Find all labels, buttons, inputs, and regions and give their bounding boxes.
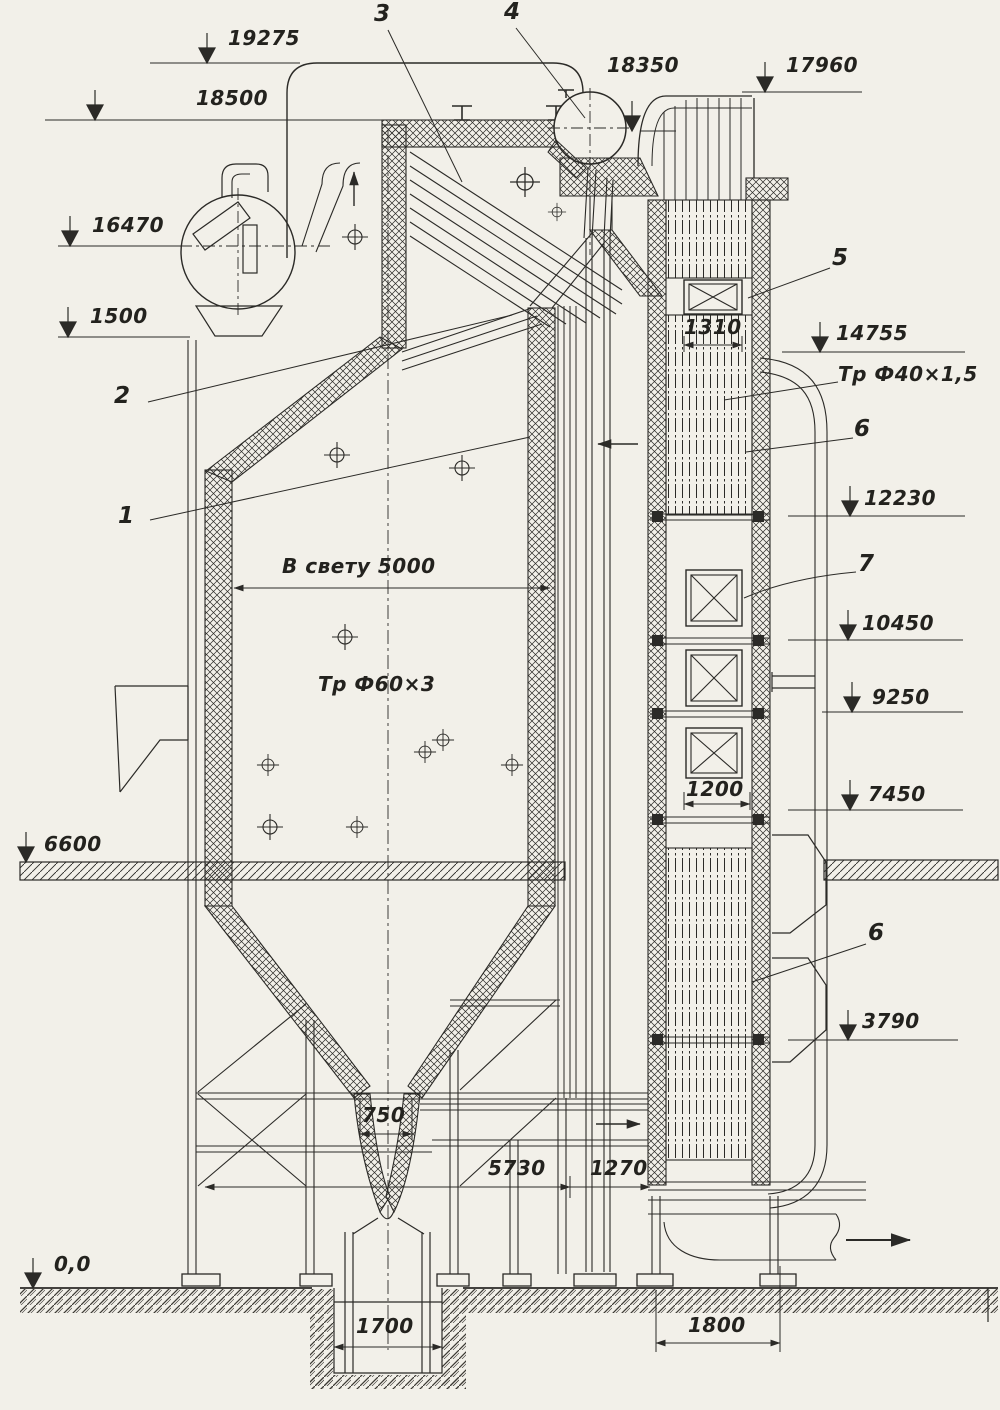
ground-and-pit bbox=[20, 1218, 998, 1389]
penthouse-casing bbox=[287, 63, 583, 258]
part-label-6-lower: 6 bbox=[868, 922, 885, 945]
furnace-tube-axis-marks bbox=[257, 167, 566, 840]
elevation-label-7450: 7450 bbox=[868, 784, 926, 804]
heating-surface-blocks bbox=[686, 570, 742, 778]
convective-shaft bbox=[648, 200, 770, 1185]
shaft-inlet-tubes bbox=[638, 96, 754, 200]
downcomer-pipes bbox=[584, 168, 613, 1272]
dimension-1200: 1200 bbox=[686, 779, 744, 799]
exit-flue bbox=[648, 1182, 910, 1260]
elevation-label-18500: 18500 bbox=[196, 88, 268, 108]
burner-duct bbox=[115, 686, 188, 792]
dimension-clear-width-5000: В свету 5000 bbox=[282, 556, 436, 576]
elevation-label-16470: 16470 bbox=[92, 215, 164, 235]
dimension-5730: 5730 bbox=[488, 1158, 546, 1178]
elevation-label-12230: 12230 bbox=[864, 488, 936, 508]
dimension-1270: 1270 bbox=[590, 1158, 648, 1178]
bottom-gas-duct bbox=[420, 1104, 648, 1146]
floor-slabs bbox=[20, 860, 998, 880]
elevation-label-0-0: 0,0 bbox=[54, 1254, 91, 1274]
shaft-inlet-damper bbox=[684, 280, 742, 314]
part-label-7: 7 bbox=[858, 553, 875, 576]
part-label-5: 5 bbox=[832, 247, 849, 270]
side-duct-bends bbox=[772, 835, 826, 1062]
elevation-label-18350: 18350 bbox=[607, 55, 679, 75]
elevation-label-14755: 14755 bbox=[836, 323, 908, 343]
part-label-1: 1 bbox=[118, 505, 135, 528]
elevation-label-1500: 1500 bbox=[90, 306, 148, 326]
elevation-label-6600: 6600 bbox=[44, 834, 102, 854]
elevation-label-10450: 10450 bbox=[862, 613, 934, 633]
part-label-2: 2 bbox=[114, 385, 131, 408]
dimension-750: 750 bbox=[362, 1105, 405, 1125]
dimension-1800: 1800 bbox=[688, 1315, 746, 1335]
drawing-linework bbox=[0, 0, 1000, 1410]
elevation-label-19275: 19275 bbox=[228, 28, 300, 48]
lower-tube-bank bbox=[666, 848, 752, 1160]
boiler-sectional-drawing: 19275 18500 18350 17960 16470 1500 14755… bbox=[0, 0, 1000, 1410]
part-label-4: 4 bbox=[504, 1, 521, 24]
dimension-1310: 1310 bbox=[684, 317, 742, 337]
part-label-6-upper: 6 bbox=[854, 418, 871, 441]
furnace-roof-screen bbox=[402, 308, 542, 370]
elevation-label-17960: 17960 bbox=[786, 55, 858, 75]
cyclone-separator bbox=[181, 163, 360, 336]
dimension-1700: 1700 bbox=[356, 1316, 414, 1336]
elevation-label-3790: 3790 bbox=[862, 1011, 920, 1031]
elevation-label-9250: 9250 bbox=[872, 687, 930, 707]
annotation-tube-40x15: Тр Ф40×1,5 bbox=[838, 364, 978, 384]
annotation-tube-60x3: Тр Ф60×3 bbox=[318, 674, 435, 694]
part-label-3: 3 bbox=[374, 3, 391, 26]
